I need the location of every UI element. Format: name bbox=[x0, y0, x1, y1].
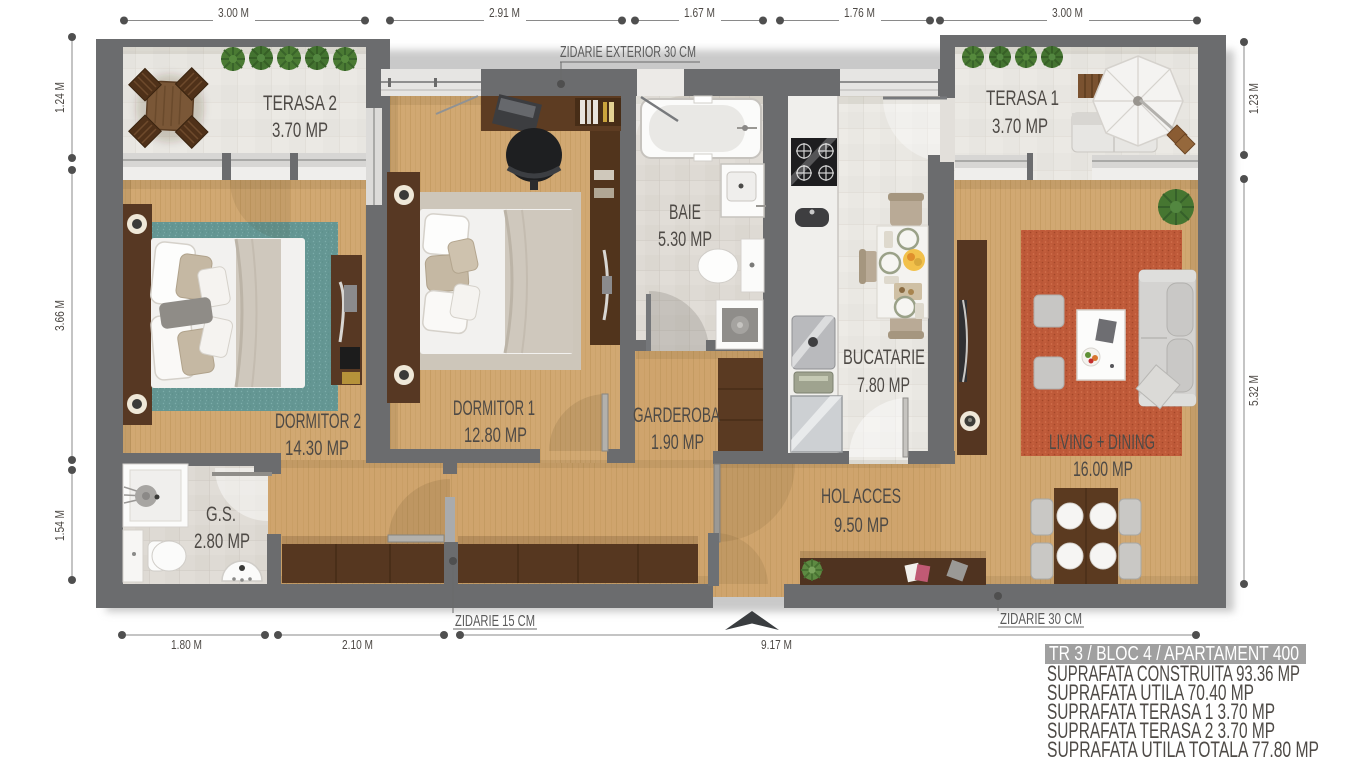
svg-text:12.80 MP: 12.80 MP bbox=[464, 424, 527, 447]
svg-text:5.32 M: 5.32 M bbox=[1246, 375, 1261, 406]
svg-text:ZIDARIE 15 CM: ZIDARIE 15 CM bbox=[455, 613, 535, 630]
svg-text:ZIDARIE 30 CM: ZIDARIE 30 CM bbox=[1000, 611, 1082, 628]
svg-text:1.90 MP: 1.90 MP bbox=[651, 431, 704, 454]
svg-text:3.66 M: 3.66 M bbox=[52, 300, 67, 331]
svg-text:1.24 M: 1.24 M bbox=[52, 82, 67, 113]
svg-text:16.00 MP: 16.00 MP bbox=[1073, 458, 1133, 481]
svg-text:GARDEROBA: GARDEROBA bbox=[633, 404, 720, 427]
svg-text:SUPRAFATA UTILA TOTALA 77.80: SUPRAFATA UTILA TOTALA 77.80 MP bbox=[1047, 737, 1319, 762]
svg-text:1.23 M: 1.23 M bbox=[1246, 83, 1261, 114]
svg-text:1.67 M: 1.67 M bbox=[684, 5, 715, 20]
svg-text:9.17 M: 9.17 M bbox=[761, 637, 792, 652]
svg-text:3.00 M: 3.00 M bbox=[1052, 5, 1083, 20]
svg-text:G.S.: G.S. bbox=[206, 503, 236, 526]
svg-text:7.80 MP: 7.80 MP bbox=[857, 374, 910, 397]
svg-text:HOL ACCES: HOL ACCES bbox=[821, 485, 901, 508]
svg-text:TERASA 2: TERASA 2 bbox=[263, 92, 337, 115]
svg-text:BUCATARIE: BUCATARIE bbox=[843, 346, 925, 369]
svg-text:5.30 MP: 5.30 MP bbox=[658, 228, 712, 251]
svg-text:3.70 MP: 3.70 MP bbox=[992, 115, 1048, 138]
svg-text:DORMITOR 1: DORMITOR 1 bbox=[453, 397, 535, 420]
svg-text:DORMITOR 2: DORMITOR 2 bbox=[275, 410, 361, 433]
svg-text:9.50 MP: 9.50 MP bbox=[834, 514, 889, 537]
svg-text:2.80 MP: 2.80 MP bbox=[194, 530, 250, 553]
svg-text:2.10 M: 2.10 M bbox=[342, 637, 373, 652]
svg-text:3.70 MP: 3.70 MP bbox=[272, 119, 328, 142]
svg-text:TERASA 1: TERASA 1 bbox=[986, 87, 1059, 110]
svg-text:14.30 MP: 14.30 MP bbox=[285, 437, 349, 460]
svg-text:ZIDARIE EXTERIOR 30 CM: ZIDARIE EXTERIOR 30 CM bbox=[560, 44, 696, 61]
svg-text:1.80 M: 1.80 M bbox=[171, 637, 202, 652]
svg-text:LIVING + DINING: LIVING + DINING bbox=[1049, 431, 1155, 454]
svg-text:1.76 M: 1.76 M bbox=[844, 5, 875, 20]
svg-text:3.00 M: 3.00 M bbox=[218, 5, 249, 20]
svg-text:1.54 M: 1.54 M bbox=[52, 510, 67, 541]
svg-text:BAIE: BAIE bbox=[669, 201, 701, 224]
svg-text:2.91 M: 2.91 M bbox=[489, 5, 520, 20]
